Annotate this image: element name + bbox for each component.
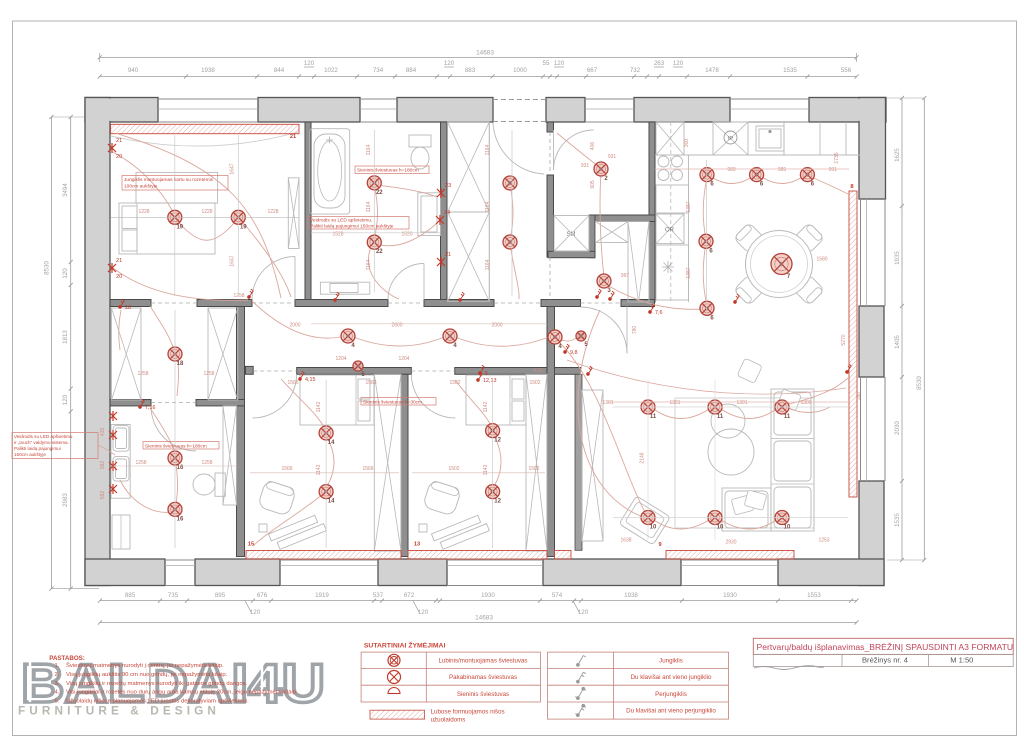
svg-text:7,6: 7,6 xyxy=(655,310,663,316)
svg-text:Visų jungiklių aukštis 90 cm n: Visų jungiklių aukštis 90 cm nuo grindų,… xyxy=(66,672,228,678)
svg-text:Lubose formuojamos nišos: Lubose formuojamos nišos xyxy=(431,709,505,716)
svg-text:1164: 1164 xyxy=(366,259,372,270)
svg-text:732: 732 xyxy=(630,67,641,74)
svg-text:4.: 4. xyxy=(55,690,60,696)
svg-text:21: 21 xyxy=(290,134,296,140)
svg-text:Sieninis šviestuvas h=180cm: Sieninis šviestuvas h=180cm xyxy=(357,168,419,174)
svg-text:Lubinis/montuojamas šviestuvas: Lubinis/montuojamas šviestuvas xyxy=(438,658,527,665)
svg-text:Perjungiklis: Perjungiklis xyxy=(655,691,687,698)
svg-text:1258: 1258 xyxy=(201,460,212,466)
svg-text:1638: 1638 xyxy=(620,538,631,544)
svg-text:5: 5 xyxy=(485,371,488,377)
svg-text:735: 735 xyxy=(168,592,179,599)
svg-text:11: 11 xyxy=(650,414,657,420)
svg-text:1566: 1566 xyxy=(281,466,292,472)
svg-text:415: 415 xyxy=(100,428,106,437)
svg-text:9,8: 9,8 xyxy=(570,350,578,356)
svg-text:885: 885 xyxy=(125,592,136,599)
svg-text:Veidrodis su LED apšvietimu: Veidrodis su LED apšvietimu xyxy=(14,434,73,439)
svg-text:12: 12 xyxy=(494,499,501,505)
svg-text:8530: 8530 xyxy=(916,376,923,390)
svg-text:1535: 1535 xyxy=(894,513,901,527)
svg-text:1164: 1164 xyxy=(485,144,491,155)
svg-text:1930: 1930 xyxy=(723,592,737,599)
svg-text:Sieninis šviestuvas h=30cm: Sieninis šviestuvas h=30cm xyxy=(363,400,422,406)
svg-text:883: 883 xyxy=(465,67,476,74)
svg-text:931: 931 xyxy=(608,154,617,160)
svg-text:895: 895 xyxy=(215,592,226,599)
svg-text:120: 120 xyxy=(418,609,429,616)
svg-text:780: 780 xyxy=(632,326,638,335)
svg-text:884: 884 xyxy=(406,67,417,74)
svg-text:5.: 5. xyxy=(55,699,60,705)
svg-text:989: 989 xyxy=(727,167,736,173)
svg-text:1938: 1938 xyxy=(624,592,638,599)
svg-text:997: 997 xyxy=(621,273,630,279)
svg-text:1502: 1502 xyxy=(529,380,540,386)
svg-text:1919: 1919 xyxy=(315,592,329,599)
svg-text:ir „touch“ valdymo sistema.: ir „touch“ valdymo sistema. xyxy=(14,440,69,445)
svg-text:2.: 2. xyxy=(55,672,60,678)
svg-text:1306: 1306 xyxy=(800,400,811,406)
svg-text:1938: 1938 xyxy=(201,67,215,74)
svg-text:14: 14 xyxy=(328,440,335,446)
svg-text:120: 120 xyxy=(304,60,315,67)
svg-text:1502: 1502 xyxy=(448,466,459,472)
svg-text:1647: 1647 xyxy=(230,163,236,174)
svg-text:20: 20 xyxy=(116,154,122,160)
svg-text:FURNITURE & DESIGN: FURNITURE & DESIGN xyxy=(18,706,220,718)
svg-text:Visų jungiklių ir rozečių matm: Visų jungiklių ir rozečių matmenys nurod… xyxy=(66,681,248,687)
svg-text:Užuolaidų nišose planuojamos L: Užuolaidų nišose planuojamos LED juostos… xyxy=(66,699,249,705)
svg-text:Du klavišai ant vieno jungikli: Du klavišai ant vieno jungiklio xyxy=(631,674,712,681)
svg-text:užuolaidoms: užuolaidoms xyxy=(431,717,466,724)
svg-text:13: 13 xyxy=(414,542,420,548)
svg-text:SUTARTINIAI ŽYMĖJIMAI: SUTARTINIAI ŽYMĖJIMAI xyxy=(364,641,446,650)
svg-text:1502: 1502 xyxy=(528,466,539,472)
svg-text:3.: 3. xyxy=(55,681,60,687)
svg-text:24: 24 xyxy=(444,210,450,216)
svg-text:2000: 2000 xyxy=(289,323,300,329)
svg-text:1.: 1. xyxy=(55,663,60,669)
svg-text:1735: 1735 xyxy=(834,152,840,163)
svg-text:150cm aukštyje: 150cm aukštyje xyxy=(14,452,46,457)
svg-text:1566: 1566 xyxy=(287,380,298,386)
svg-text:Palikti laidą pajungimui 150cm: Palikti laidą pajungimui 150cm aukštyje xyxy=(310,224,394,230)
svg-text:21: 21 xyxy=(116,258,122,264)
svg-text:200: 200 xyxy=(856,392,861,400)
svg-text:Jungiklis montuojamas kartu su: Jungiklis montuojamas kartu su rozetėmis xyxy=(124,177,214,183)
svg-text:Pertvarų/baldų išplanavimas_BR: Pertvarų/baldų išplanavimas_BRĖŽINĮ SPAU… xyxy=(757,642,1014,652)
svg-text:18: 18 xyxy=(177,361,184,367)
svg-text:11: 11 xyxy=(784,414,791,420)
svg-text:1164: 1164 xyxy=(485,259,491,270)
svg-text:20: 20 xyxy=(116,274,122,280)
svg-text:940: 940 xyxy=(128,67,139,74)
svg-text:5270: 5270 xyxy=(841,334,847,345)
svg-text:592: 592 xyxy=(100,461,106,470)
svg-text:16: 16 xyxy=(177,516,184,522)
svg-text:1301: 1301 xyxy=(602,400,613,406)
svg-text:M 1:50: M 1:50 xyxy=(950,656,973,665)
svg-text:989: 989 xyxy=(778,167,787,173)
svg-text:1566: 1566 xyxy=(362,466,373,472)
svg-text:1253: 1253 xyxy=(818,538,829,544)
svg-text:300: 300 xyxy=(684,139,690,148)
svg-text:931: 931 xyxy=(581,163,590,169)
svg-text:1142: 1142 xyxy=(316,464,322,475)
svg-text:1387: 1387 xyxy=(686,267,692,278)
svg-text:1566: 1566 xyxy=(365,380,376,386)
svg-text:OR: OR xyxy=(665,228,675,234)
svg-text:11: 11 xyxy=(717,414,724,420)
svg-text:537: 537 xyxy=(373,592,384,599)
svg-text:Sieninis šviestuvas: Sieninis šviestuvas xyxy=(457,691,509,698)
svg-text:1387: 1387 xyxy=(686,201,692,212)
svg-text:22: 22 xyxy=(376,249,383,255)
svg-text:1553: 1553 xyxy=(807,592,821,599)
svg-text:1142: 1142 xyxy=(483,464,489,475)
svg-text:21: 21 xyxy=(116,138,122,144)
svg-text:120: 120 xyxy=(444,60,455,67)
svg-text:120: 120 xyxy=(578,609,589,616)
svg-text:1647: 1647 xyxy=(230,255,236,266)
svg-text:15: 15 xyxy=(248,542,254,548)
svg-text:12,13: 12,13 xyxy=(483,378,497,384)
svg-text:734: 734 xyxy=(373,67,384,74)
svg-text:1164: 1164 xyxy=(366,144,372,155)
svg-text:2148: 2148 xyxy=(639,452,645,463)
svg-text:844: 844 xyxy=(274,67,285,74)
svg-text:120: 120 xyxy=(62,394,69,405)
svg-text:1301: 1301 xyxy=(736,400,747,406)
svg-text:1580: 1580 xyxy=(816,256,827,262)
svg-text:556: 556 xyxy=(841,67,852,74)
svg-text:23: 23 xyxy=(445,183,451,189)
svg-text:1000: 1000 xyxy=(513,67,527,74)
svg-text:Pakabinamas šviestuvas: Pakabinamas šviestuvas xyxy=(449,674,517,681)
svg-text:120: 120 xyxy=(673,60,684,67)
svg-text:19: 19 xyxy=(240,224,247,230)
svg-text:22: 22 xyxy=(376,190,383,196)
svg-text:PASTABOS:: PASTABOS: xyxy=(49,655,85,662)
svg-text:1502: 1502 xyxy=(449,380,460,386)
svg-text:1142: 1142 xyxy=(316,401,322,412)
svg-text:Visi jungikliai ir rozetės nuo: Visi jungikliai ir rozetės nuo durų angų… xyxy=(66,690,298,696)
svg-text:1813: 1813 xyxy=(62,330,69,344)
svg-text:1228: 1228 xyxy=(201,209,212,215)
svg-text:1258: 1258 xyxy=(203,371,214,377)
svg-text:IP: IP xyxy=(728,136,734,142)
svg-text:4,15: 4,15 xyxy=(533,368,543,374)
svg-text:9: 9 xyxy=(658,542,661,548)
svg-text:1930: 1930 xyxy=(481,592,495,599)
svg-text:1258: 1258 xyxy=(135,460,146,466)
svg-text:574: 574 xyxy=(552,592,563,599)
svg-text:10: 10 xyxy=(717,525,724,531)
svg-text:120: 120 xyxy=(62,268,69,279)
svg-text:1258: 1258 xyxy=(137,371,148,377)
svg-text:1405: 1405 xyxy=(894,335,901,349)
svg-text:14683: 14683 xyxy=(476,50,494,57)
svg-text:4,15: 4,15 xyxy=(305,377,316,383)
svg-text:263: 263 xyxy=(654,60,665,67)
svg-text:1204: 1204 xyxy=(335,356,346,362)
svg-text:Šviestuvų matmenys nurodyti į: Šviestuvų matmenys nurodyti į centrą, je… xyxy=(66,662,224,669)
svg-text:1228: 1228 xyxy=(138,209,149,215)
svg-text:1625: 1625 xyxy=(894,148,901,162)
svg-text:1164: 1164 xyxy=(485,201,491,212)
svg-text:7,16: 7,16 xyxy=(145,405,156,411)
svg-text:Palikti laidą pajungimui: Palikti laidą pajungimui xyxy=(14,446,61,451)
svg-text:14683: 14683 xyxy=(475,615,493,622)
svg-text:991: 991 xyxy=(829,167,838,173)
svg-text:667: 667 xyxy=(587,67,598,74)
svg-text:676: 676 xyxy=(257,592,268,599)
svg-text:1258: 1258 xyxy=(233,293,244,299)
svg-text:406: 406 xyxy=(590,142,596,151)
svg-text:1164: 1164 xyxy=(366,201,372,212)
svg-text:1142: 1142 xyxy=(483,401,489,412)
svg-text:10: 10 xyxy=(784,525,791,531)
svg-text:100cm aukštyje: 100cm aukštyje xyxy=(124,184,158,190)
svg-text:1478: 1478 xyxy=(705,67,719,74)
svg-text:55: 55 xyxy=(543,60,550,67)
svg-text:12: 12 xyxy=(494,438,501,444)
svg-text:1301: 1301 xyxy=(669,400,680,406)
svg-text:21: 21 xyxy=(445,252,451,258)
svg-text:2983: 2983 xyxy=(62,493,69,507)
svg-text:18: 18 xyxy=(125,305,131,311)
svg-text:1204: 1204 xyxy=(398,356,409,362)
svg-text:1535: 1535 xyxy=(783,67,797,74)
svg-text:1022: 1022 xyxy=(324,67,338,74)
svg-text:19: 19 xyxy=(176,224,183,230)
svg-text:592: 592 xyxy=(100,491,106,500)
svg-text:Veidrodis su LED apšvietimu.: Veidrodis su LED apšvietimu. xyxy=(310,218,372,224)
svg-text:2030: 2030 xyxy=(894,421,901,435)
svg-text:1935: 1935 xyxy=(894,251,901,265)
svg-text:2930: 2930 xyxy=(725,540,736,546)
svg-text:3494: 3494 xyxy=(62,183,69,197)
svg-text:10: 10 xyxy=(650,525,657,531)
svg-text:8530: 8530 xyxy=(44,261,51,275)
svg-text:14: 14 xyxy=(328,499,335,505)
svg-text:120: 120 xyxy=(250,609,261,616)
svg-text:Du klavišai ant vieno perjungi: Du klavišai ant vieno perjungiklio xyxy=(626,708,716,715)
svg-text:Brėžinys nr. 4: Brėžinys nr. 4 xyxy=(862,656,908,665)
svg-text:905: 905 xyxy=(590,180,596,189)
svg-text:672: 672 xyxy=(404,592,415,599)
svg-text:Sieninis šviestuvas h=180cm: Sieninis šviestuvas h=180cm xyxy=(145,444,207,450)
svg-text:Jungiklis: Jungiklis xyxy=(659,658,683,665)
svg-text:1228: 1228 xyxy=(267,209,278,215)
svg-text:120: 120 xyxy=(554,60,565,67)
